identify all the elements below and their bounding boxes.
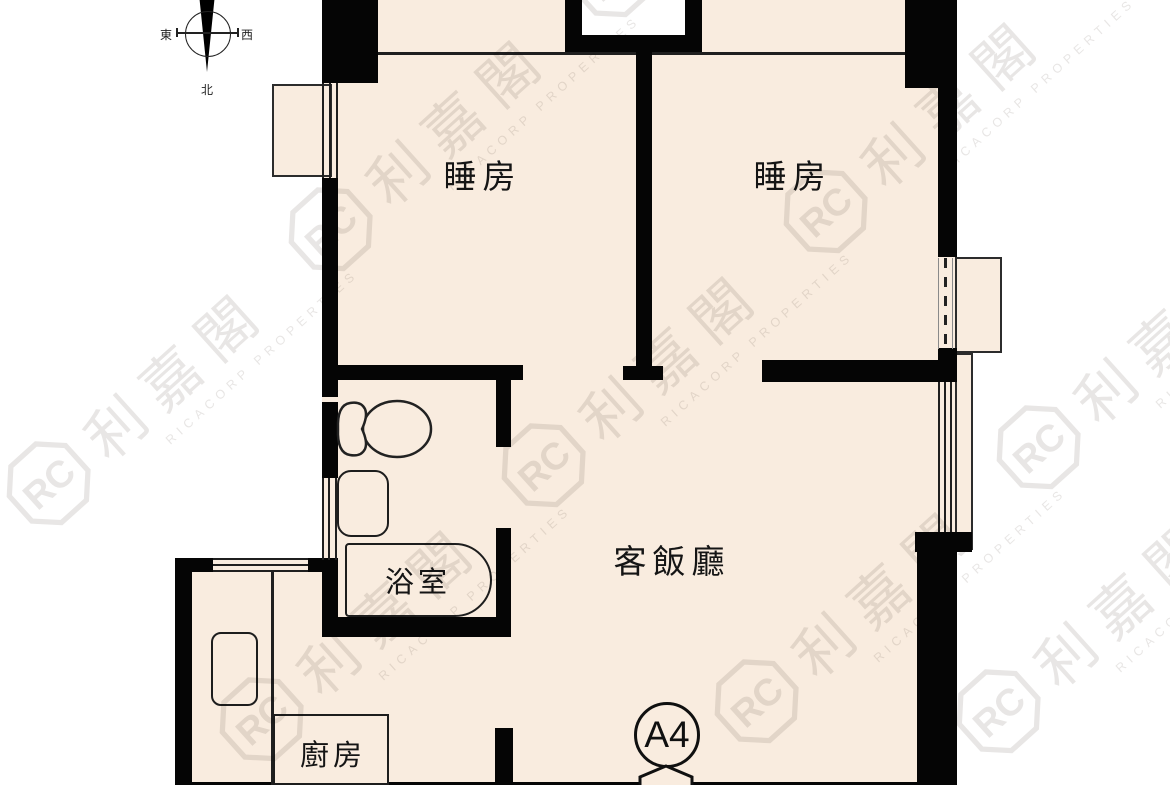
wall-kitchen-top-right <box>308 558 338 572</box>
wall-notch-bottom <box>565 35 702 52</box>
bedroom1-label: 睡房 <box>400 152 565 196</box>
watermark-en: RICACORP PROPERTIES <box>1153 231 1170 411</box>
wall-entry-stub <box>495 728 513 785</box>
watermark-cjk: 利嘉閣 <box>1054 229 1170 440</box>
wall-bath-left-a <box>322 380 338 397</box>
window-living-right <box>938 382 940 532</box>
wall-bath-right-top <box>496 380 511 447</box>
compass-north-label: 北 <box>201 81 213 98</box>
kitchen-label: 廚房 <box>278 733 388 773</box>
wall-topleft-block <box>322 0 378 83</box>
svg-text:RC: RC <box>1005 415 1074 483</box>
right-ac-platform <box>955 257 1002 353</box>
top-notch <box>582 0 685 35</box>
compass-east-label: 東 <box>160 26 172 43</box>
watermark-cjk: 利嘉閣 <box>64 265 285 476</box>
wall-divider-foot <box>623 366 663 380</box>
window-bed1-left <box>329 83 331 178</box>
window-living-right <box>950 382 952 532</box>
bathroom-label: 浴室 <box>358 560 478 600</box>
kitchen-text: 廚房 <box>300 732 366 774</box>
window-bath-left <box>322 478 324 560</box>
compass: 東 西 北 <box>0 0 260 110</box>
watermark-en: RICACORP PROPERTIES <box>940 0 1138 175</box>
bedroom2-text: 睡房 <box>754 150 832 198</box>
wall-bedroom-divider <box>636 52 652 368</box>
bedroom1-text: 睡房 <box>444 150 522 198</box>
entrance-arrow-icon <box>634 764 698 785</box>
toilet-icon <box>333 397 435 461</box>
ricacorp-logo-icon: RC <box>979 388 1098 507</box>
right-bay-strip <box>955 353 973 550</box>
compass-west-label: 西 <box>241 26 253 43</box>
wall-right-bottom <box>917 552 957 785</box>
compass-tick <box>176 28 178 37</box>
watermark: RC 利嘉閣 RICACORP PROPERTIES <box>1030 0 1170 52</box>
compass-tick <box>237 28 239 37</box>
compass-axis <box>176 32 238 34</box>
ricacorp-logo-icon: RC <box>1048 0 1167 17</box>
compass-dial-icon <box>185 11 231 57</box>
window-kitchen-top <box>213 564 308 566</box>
living-dining-label: 客飯廳 <box>572 537 772 581</box>
wall-bed1-bottom <box>322 365 523 380</box>
floor-plan: 睡房 睡房 客飯廳 浴室 廚房 A4 東 西 北 RC 利嘉閣 RICACORP… <box>0 0 1170 785</box>
wall-left-upper <box>322 178 338 365</box>
wall-bed2-bottom <box>762 360 957 382</box>
kitchen-appliance <box>211 632 258 706</box>
window-dashed <box>944 258 947 349</box>
bedroom2-label: 睡房 <box>710 152 875 196</box>
wall-right-top <box>938 0 957 257</box>
ricacorp-logo-icon: RC <box>939 652 1058 771</box>
wall-right-corner-block <box>915 532 972 552</box>
ricacorp-logo-icon: RC <box>0 424 108 543</box>
living-dining-text: 客飯廳 <box>614 535 731 583</box>
svg-text:RC: RC <box>965 679 1034 747</box>
watermark-en: RICACORP PROPERTIES <box>1113 495 1170 675</box>
wall-kitchen-left <box>175 558 192 785</box>
bathroom-text: 浴室 <box>385 559 451 601</box>
unit-label: A4 <box>644 714 689 756</box>
window-bed1-left <box>336 83 338 178</box>
window-bath-left <box>328 478 330 560</box>
window-dashed-edge <box>952 258 953 349</box>
window-dashed-edge <box>938 258 939 349</box>
wall-notch-right <box>685 0 702 52</box>
window-kitchen-top <box>213 570 308 572</box>
window-living-right <box>944 382 946 532</box>
svg-text:RC: RC <box>15 451 84 519</box>
window-kitchen-top <box>213 558 308 560</box>
unit-badge: A4 <box>634 702 700 768</box>
window-bed1-left <box>322 83 324 178</box>
watermark-cjk: 利嘉閣 <box>1014 493 1170 704</box>
wall-bath-bottom <box>322 617 511 637</box>
sink <box>337 470 389 537</box>
